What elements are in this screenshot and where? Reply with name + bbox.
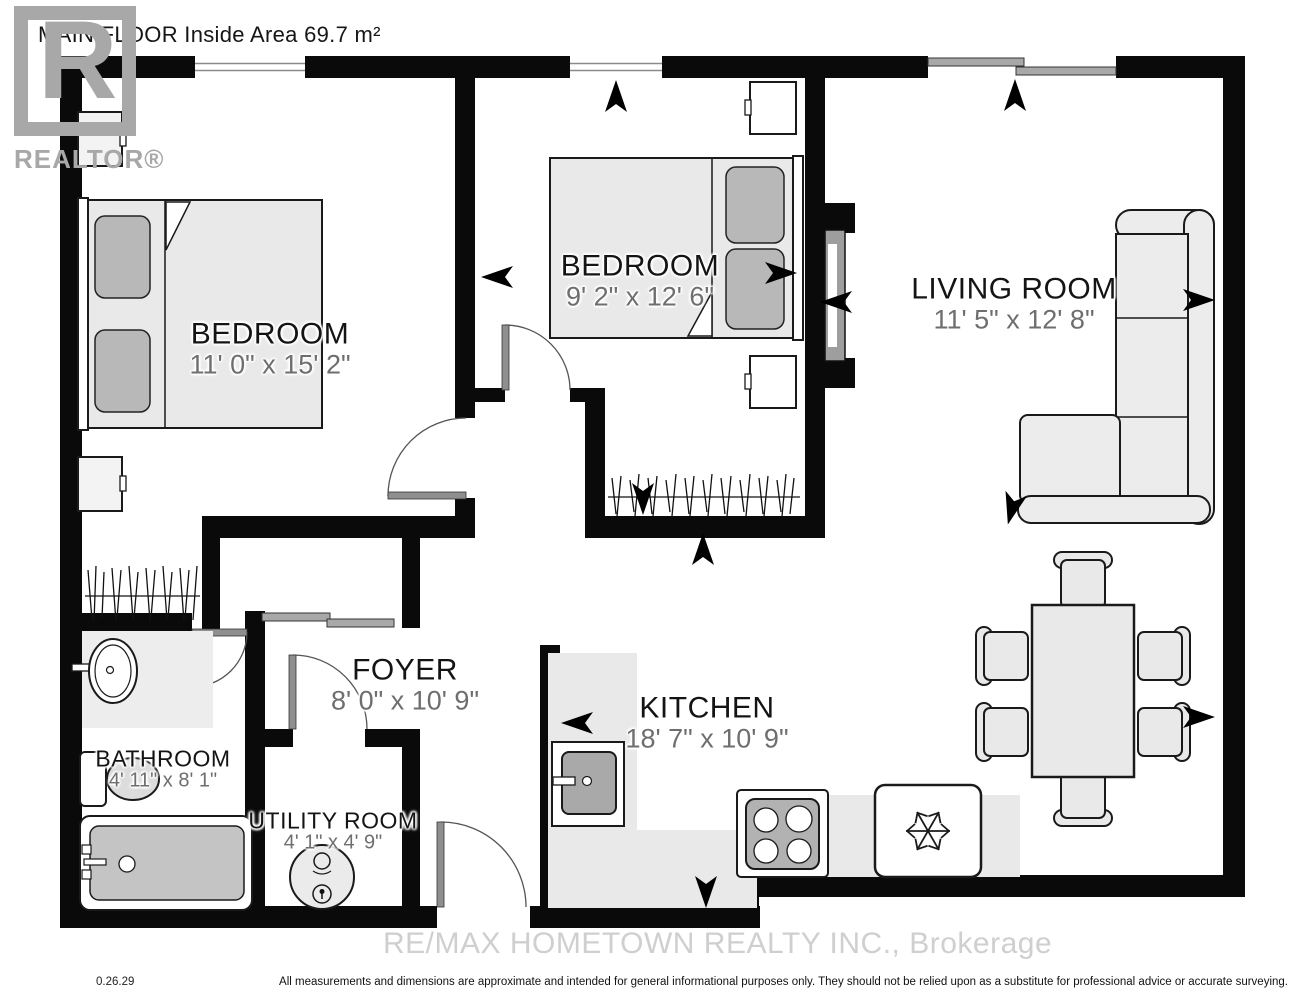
dining-chair-right-upper (1138, 627, 1190, 685)
label-kitchen: KITCHEN 18' 7" x 10' 9" (625, 693, 788, 754)
room-dimensions: 18' 7" x 10' 9" (625, 725, 788, 754)
dining-set (976, 552, 1190, 826)
dining-chair-top (1054, 552, 1112, 608)
realtor-logo-caption: REALTOR® (14, 144, 164, 175)
bathtub (80, 816, 252, 910)
dining-chair-bottom (1054, 770, 1112, 826)
bedroom1-door-leaf (388, 492, 466, 499)
room-dimensions: 9' 2" x 12' 6" (561, 283, 720, 312)
kitchen-sink (552, 742, 624, 826)
bed-bedroom2 (550, 156, 803, 340)
room-name: BEDROOM (561, 251, 720, 283)
washer (290, 845, 354, 909)
room-name: UTILITY ROOM (248, 809, 417, 833)
footer-revision: 0.26.29 (96, 976, 134, 988)
room-dimensions: 4' 11" x 8' 1" (95, 771, 230, 792)
dining-chair-left-lower (976, 703, 1028, 761)
dining-table (1032, 605, 1134, 777)
room-dimensions: 11' 0" x 15' 2" (189, 351, 350, 380)
realtor-watermark: R REALTOR® (14, 6, 174, 186)
window-bedroom2 (570, 56, 662, 78)
room-name: KITCHEN (625, 693, 788, 725)
arrow-up-living-window (1004, 79, 1026, 111)
label-foyer: FOYER 8' 0" x 10' 9" (331, 655, 479, 716)
entry-door-leaf (437, 822, 444, 907)
floor-plan-canvas: MAIN FLOOR Inside Area 69.7 m² R REALTOR… (0, 0, 1294, 1000)
nightstand-bedroom2-top (745, 82, 796, 134)
cabinet-bedroom1-bottom (78, 457, 126, 511)
room-dimensions: 8' 0" x 10' 9" (331, 687, 479, 716)
bed-bedroom1 (78, 198, 322, 430)
room-dimensions: 4' 1" x 4' 9" (248, 833, 417, 854)
room-dimensions: 11' 5" x 12' 8" (911, 306, 1117, 335)
room-name: BEDROOM (189, 319, 350, 351)
utility-door-leaf (289, 655, 296, 729)
nightstand-bedroom2-bottom (745, 356, 796, 408)
footer-disclaimer: All measurements and dimensions are appr… (279, 976, 1288, 988)
brokerage-watermark: RE/MAX HOMETOWN REALTY INC., Brokerage (383, 927, 1052, 961)
stove (737, 790, 828, 877)
label-bathroom: BATHROOM 4' 11" x 8' 1" (95, 747, 230, 792)
dining-chair-right-lower (1138, 703, 1190, 761)
pillow (726, 249, 784, 329)
label-living-room: LIVING ROOM 11' 5" x 12' 8" (911, 274, 1117, 335)
arrow-up-bedroom2-window (605, 80, 627, 112)
room-name: LIVING ROOM (911, 274, 1117, 306)
arrow-left-bedroom2-wall (481, 266, 513, 288)
label-bedroom1: BEDROOM 11' 0" x 15' 2" (189, 319, 350, 380)
window-living-slider (928, 56, 1116, 78)
sectional-sofa (1018, 210, 1214, 524)
room-name: FOYER (331, 655, 479, 687)
dining-chair-left-upper (976, 627, 1028, 685)
floor-plan-drawing (0, 0, 1294, 1000)
room-name: BATHROOM (95, 747, 230, 771)
bedroom2-door-leaf (502, 325, 509, 390)
pillow (95, 216, 150, 298)
pillow (95, 330, 150, 412)
fridge (875, 785, 981, 877)
label-bedroom2: BEDROOM 9' 2" x 12' 6" (561, 251, 720, 312)
foyer-closet-slider (262, 613, 394, 627)
label-utility-room: UTILITY ROOM 4' 1" x 4' 9" (248, 809, 417, 854)
pillow (726, 167, 784, 243)
realtor-logo-letter: R (38, 6, 117, 116)
window-bedroom1 (195, 56, 305, 78)
